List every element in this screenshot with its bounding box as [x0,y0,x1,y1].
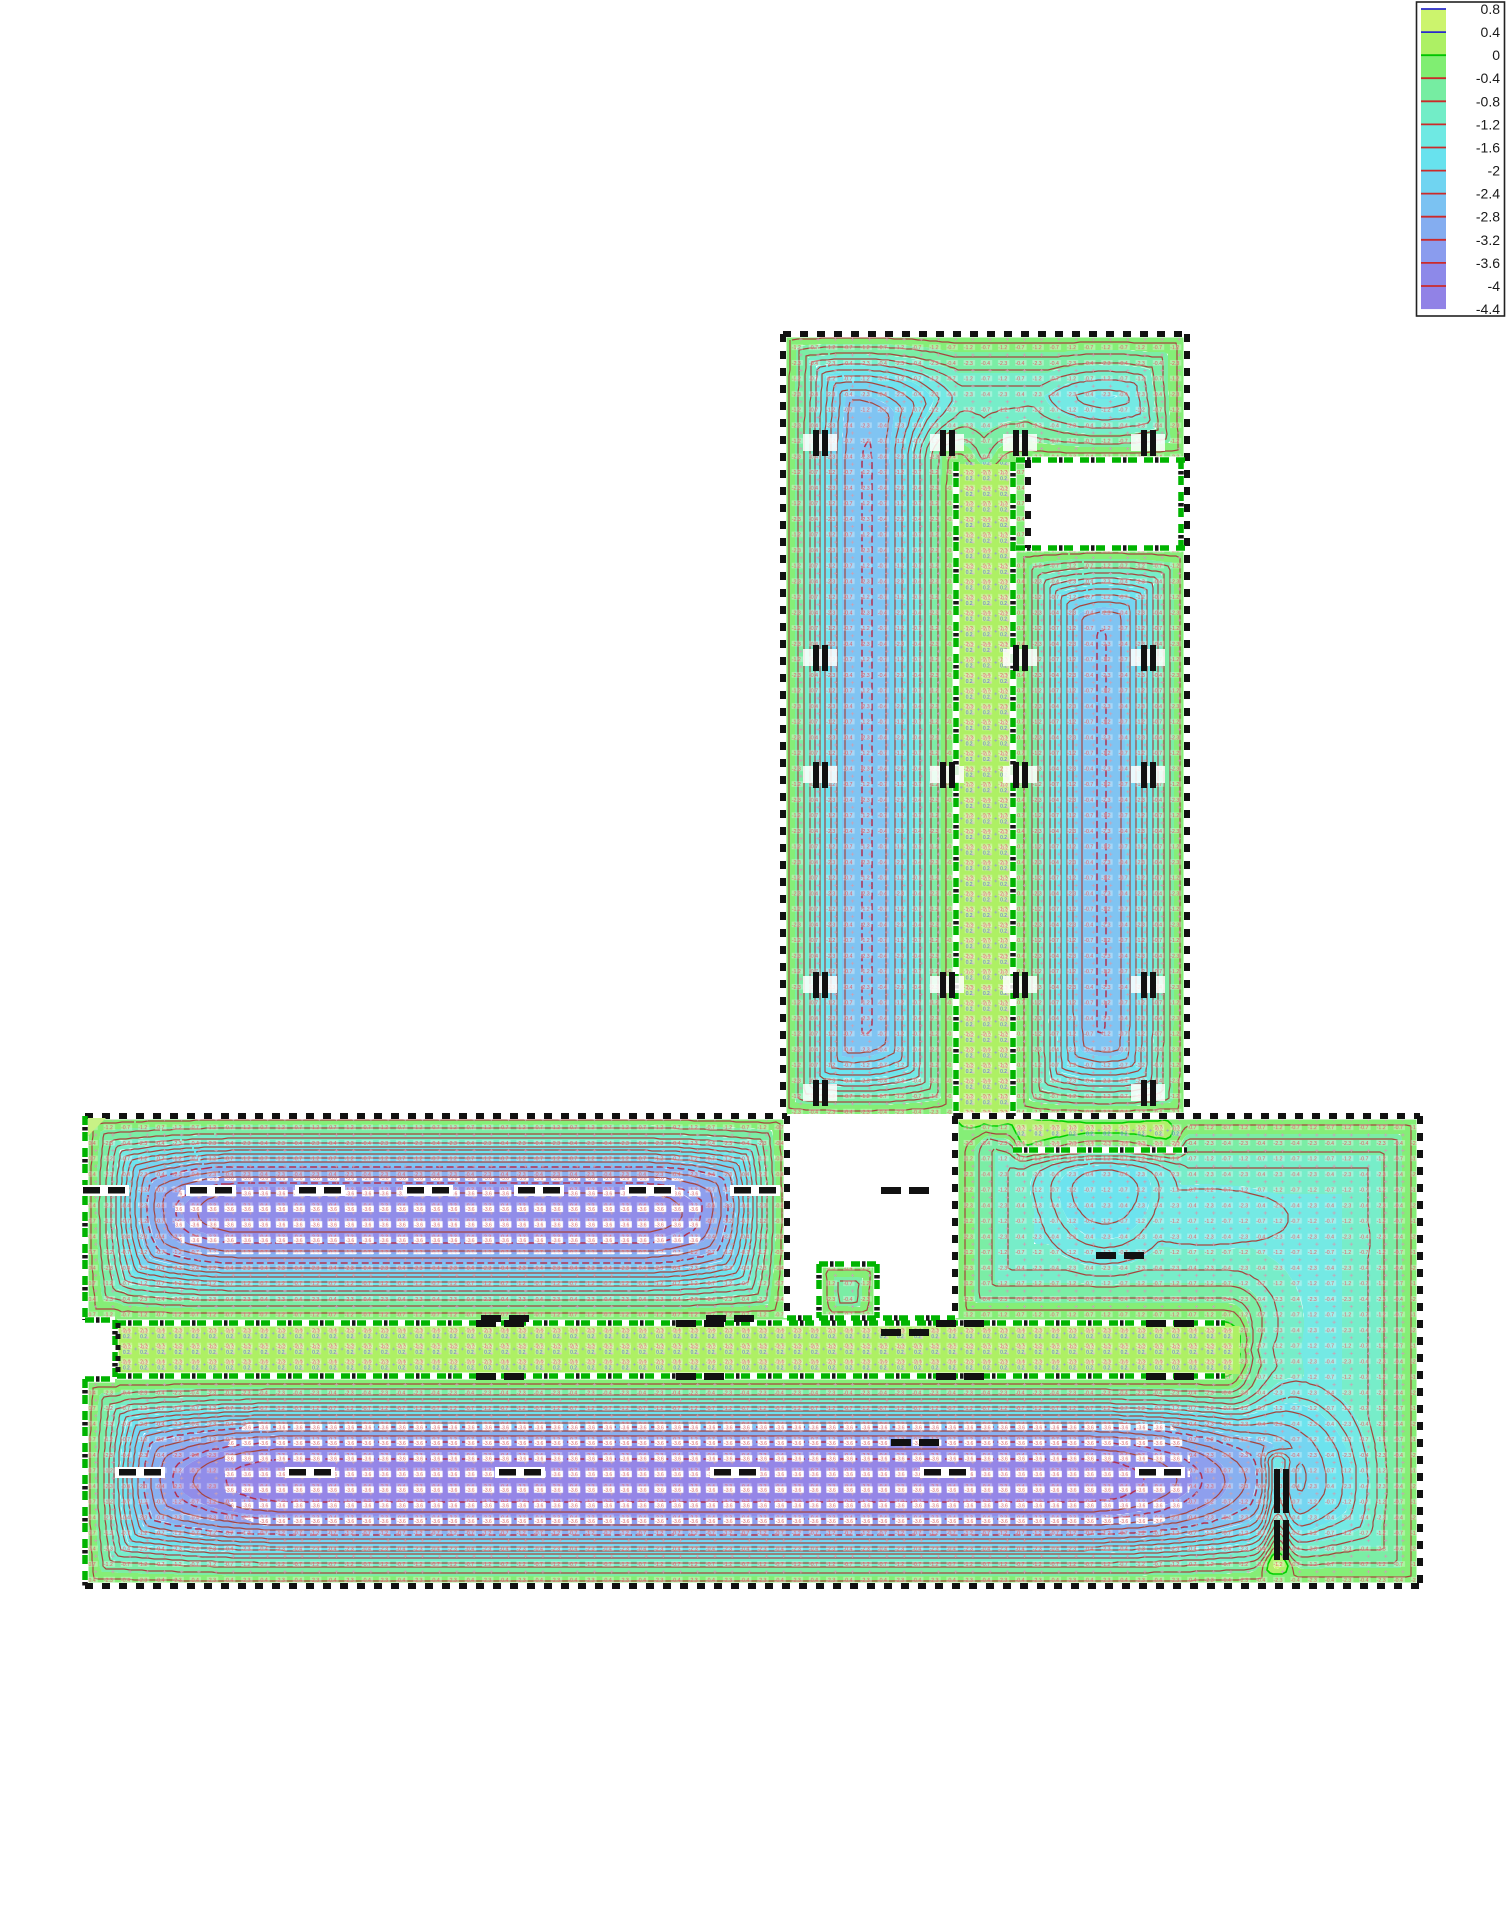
svg-text:-3.2: -3.2 [1476,232,1500,248]
svg-text:0: 0 [1492,47,1500,63]
svg-text:-1.2: -1.2 [1476,116,1500,132]
svg-text:-4: -4 [1488,278,1501,294]
svg-text:0.4: 0.4 [1481,24,1501,40]
svg-text:0.8: 0.8 [1481,1,1501,17]
svg-text:-2: -2 [1488,163,1501,179]
svg-text:-0.8: -0.8 [1476,93,1500,109]
svg-text:-3.6: -3.6 [1476,255,1500,271]
svg-text:-0.4: -0.4 [1476,70,1500,86]
svg-text:-1.6: -1.6 [1476,140,1500,156]
svg-text:-2.4: -2.4 [1476,186,1500,202]
svg-text:-2.8: -2.8 [1476,209,1500,225]
svg-text:-4.4: -4.4 [1476,301,1500,317]
